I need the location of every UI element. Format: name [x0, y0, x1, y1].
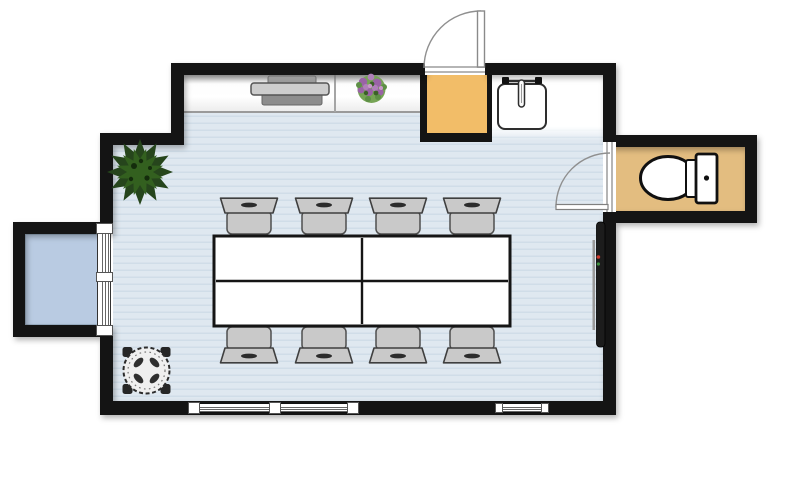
- chair[interactable]: [444, 198, 501, 234]
- sink[interactable]: [498, 77, 546, 129]
- chair[interactable]: [370, 327, 427, 363]
- faucet-knob: [535, 77, 542, 84]
- chair[interactable]: [444, 327, 501, 363]
- entry-door[interactable]: [424, 11, 485, 68]
- flush-button: [704, 175, 709, 180]
- chair[interactable]: [296, 327, 353, 363]
- tv-led-red: [597, 255, 601, 259]
- conference-table[interactable]: [214, 236, 510, 326]
- tv-led-green: [597, 262, 600, 265]
- flower-pot[interactable]: [356, 74, 387, 103]
- toilet[interactable]: [641, 154, 718, 203]
- chair[interactable]: [221, 327, 278, 363]
- bathroom-door[interactable]: [556, 153, 610, 210]
- furniture-layer: [0, 0, 800, 494]
- chair[interactable]: [221, 198, 278, 234]
- chair[interactable]: [370, 198, 427, 234]
- chair[interactable]: [296, 198, 353, 234]
- wall-tv[interactable]: [593, 222, 606, 347]
- large-plant[interactable]: [107, 139, 173, 205]
- faucet-knob: [502, 77, 509, 84]
- bistro-table[interactable]: [123, 347, 171, 394]
- printer[interactable]: [251, 76, 329, 105]
- floor-plan-canvas: [0, 0, 800, 494]
